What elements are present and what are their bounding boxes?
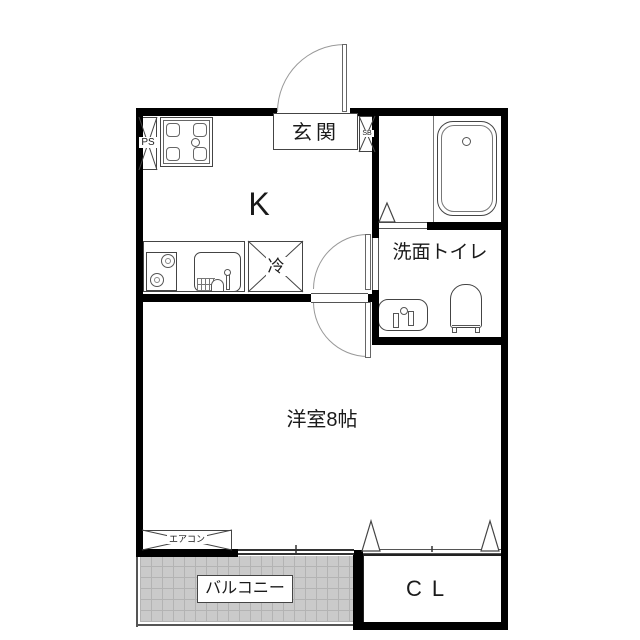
room-door-leaf [365, 302, 371, 358]
toilet-base-line [452, 325, 480, 326]
washer-pan-pad [193, 147, 207, 161]
washer-pan-pad [166, 123, 180, 137]
room-label-closet: CL [375, 578, 485, 600]
wall-balcony-closet-post [353, 550, 363, 630]
wall-bottom-left [136, 549, 238, 557]
toilet-foot [475, 327, 480, 333]
balcony-edge-left [136, 554, 138, 627]
room-label-balcony: バルコニー [199, 581, 291, 597]
fixture-label-air-conditioner: エアコン [149, 535, 225, 544]
closet-bifold-mark [362, 521, 380, 551]
washroom-door-arc [313, 234, 368, 289]
wall-washroom-bottom [372, 337, 508, 345]
fixture-label-pipe-space: PS [138, 138, 158, 148]
toilet-foot [452, 327, 457, 333]
bathtub-faucet [462, 137, 471, 146]
sink-faucet [211, 279, 224, 291]
entrance-door-leaf [342, 44, 347, 112]
room-doorway [311, 293, 368, 303]
basin-handle [408, 311, 414, 326]
fixture-label-shoe-box: SB [359, 130, 375, 137]
bathroom-doorway [379, 222, 427, 229]
wash-basin [378, 299, 428, 331]
basin-handle [393, 313, 399, 328]
wall-bottom-right [353, 622, 508, 630]
closet-front-line [363, 549, 501, 554]
fixture-label-refrigerator: 冷 [258, 258, 294, 275]
wall-left [136, 108, 143, 557]
stove-burner-center [165, 258, 171, 264]
room-label-western-room: 洋室8帖 [262, 410, 382, 430]
washroom-door-leaf [365, 234, 371, 290]
room-label-entrance: 玄関 [276, 123, 356, 143]
room-label-washroom-toilet: 洗面トイレ [375, 243, 505, 262]
wall-top-right [350, 108, 508, 116]
balcony-window [238, 549, 354, 555]
wall-bath-bottom [427, 222, 508, 230]
washer-pan-drain [191, 138, 200, 147]
wall-kitchen-room-divider [136, 294, 311, 302]
entrance-door-arc [277, 44, 345, 112]
wall-right [501, 108, 508, 630]
wall-door-hinge-post [368, 294, 379, 302]
room-door-arc [313, 302, 368, 357]
washer-pan-pad [193, 123, 207, 137]
balcony-edge-bottom [136, 624, 355, 626]
wall-top-left [136, 108, 277, 116]
closet-bifold-mark [481, 521, 499, 551]
washer-pan-pad [166, 147, 180, 161]
bathroom-door-mark [379, 203, 395, 222]
stove-burner-center [154, 277, 160, 283]
toilet [450, 284, 482, 328]
floor-plan: K 玄関 洗面トイレ 洋室8帖 バルコニー CL PS SB 冷 エアコン [0, 0, 640, 640]
sink-lever-knob [224, 269, 231, 276]
basin-faucet [400, 307, 408, 315]
room-label-kitchen: K [236, 188, 282, 220]
bathtub-platform-edge [433, 116, 434, 222]
